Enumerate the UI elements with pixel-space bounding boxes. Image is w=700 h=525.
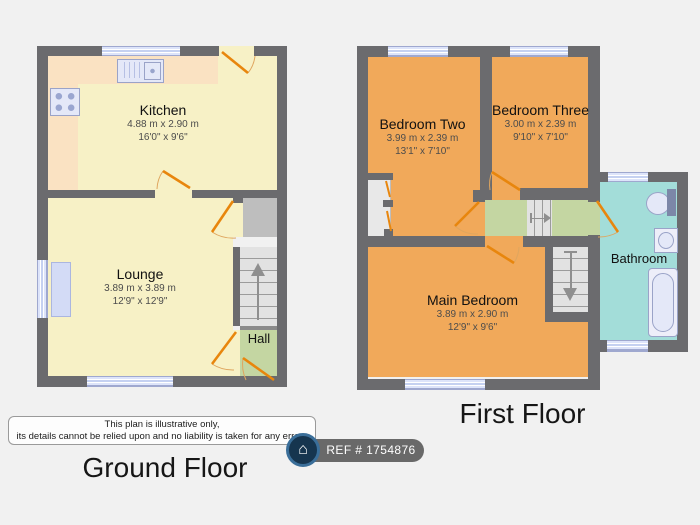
room-dimensions-metric: 3.99 m x 2.39 m — [350, 133, 495, 146]
bedroom-three-door-opening — [488, 188, 520, 200]
room-dimensions-imperial: 12'9" x 9'6" — [395, 322, 550, 335]
room-name: Kitchen — [88, 102, 238, 119]
bedroom-two-door-opening — [473, 202, 485, 233]
wall — [240, 326, 277, 330]
kitchen-label: Kitchen 4.88 m x 2.90 m 16'0" x 9'6" — [88, 102, 238, 144]
room-dimensions-imperial: 9'10" x 7'10" — [478, 132, 603, 145]
wall — [180, 46, 219, 56]
room-name: Bedroom Three — [478, 102, 603, 119]
wall — [648, 340, 688, 352]
toilet-cistern — [667, 189, 676, 216]
window — [37, 260, 48, 318]
room-dimensions-metric: 3.89 m x 3.89 m — [65, 283, 215, 296]
landing — [485, 200, 527, 236]
room-dimensions-metric: 3.89 m x 2.90 m — [395, 309, 550, 322]
house-icon-glyph: ⌂ — [298, 441, 308, 458]
bedroom-three-label: Bedroom Three 3.00 m x 2.39 m 9'10" x 7'… — [478, 102, 603, 144]
ground-floor-title: Ground Floor — [40, 452, 290, 484]
floorplan-canvas: Kitchen 4.88 m x 2.90 m 16'0" x 9'6" Lou… — [0, 0, 700, 525]
sink-drainer — [120, 62, 142, 78]
main-bedroom-understairs — [545, 322, 588, 377]
wall — [523, 236, 600, 247]
window — [608, 172, 648, 182]
wall — [473, 190, 485, 202]
window — [388, 46, 448, 57]
basin-bowl — [658, 232, 674, 249]
wall — [383, 200, 393, 207]
wall — [384, 229, 393, 236]
wall — [192, 190, 277, 198]
stairs-top-flight — [527, 200, 552, 236]
window — [510, 46, 568, 57]
hall-label: Hall — [240, 331, 278, 346]
bathroom-label: Bathroom — [600, 251, 678, 266]
disclaimer-box: This plan is illustrative only, its deta… — [8, 416, 316, 445]
room-name: Lounge — [65, 266, 215, 283]
house-icon: ⌂ — [286, 433, 320, 467]
disclaimer-line1: This plan is illustrative only, — [9, 419, 315, 431]
understairs-cupboard — [243, 198, 277, 237]
wall — [233, 198, 243, 203]
window — [102, 46, 180, 56]
back-door-opening — [219, 46, 254, 56]
first-floor-title: First Floor — [400, 398, 645, 430]
cupboard-opening — [233, 203, 243, 237]
kitchen-sink — [117, 59, 164, 83]
wall — [448, 46, 510, 57]
wall — [48, 190, 155, 198]
wall — [485, 379, 600, 390]
bathroom-door-opening — [588, 202, 600, 235]
room-dimensions-imperial: 12'9" x 12'9" — [65, 296, 215, 309]
wall — [277, 46, 287, 387]
kitchen-lounge-opening — [155, 190, 192, 198]
wall — [173, 376, 287, 387]
wall — [357, 173, 393, 180]
room-dimensions-imperial: 13'1" x 7'10" — [350, 146, 495, 159]
disclaimer-line2: its details cannot be relied upon and no… — [9, 431, 315, 443]
stove — [50, 88, 80, 116]
stairs-right-arrow — [544, 213, 551, 223]
washbasin — [654, 228, 678, 253]
stairs-up-arrow — [251, 263, 265, 276]
room-dimensions-metric: 3.00 m x 2.39 m — [478, 119, 603, 132]
lounge-label: Lounge 3.89 m x 3.89 m 12'9" x 12'9" — [65, 266, 215, 308]
wall — [357, 379, 405, 390]
wall — [677, 172, 688, 352]
room-name: Bedroom Two — [350, 116, 495, 133]
landing — [552, 200, 588, 236]
room-name: Main Bedroom — [395, 292, 550, 309]
lounge-hall-opening — [233, 330, 240, 377]
room-dimensions-metric: 4.88 m x 2.90 m — [88, 119, 238, 132]
staircase-up — [240, 247, 277, 326]
staircase-down — [553, 247, 588, 312]
wall — [600, 172, 608, 182]
wall — [357, 236, 485, 247]
wall — [357, 46, 368, 390]
bathtub — [648, 268, 678, 337]
sink-basin — [144, 62, 161, 80]
room-dimensions-imperial: 16'0" x 9'6" — [88, 132, 238, 145]
bathtub-inner — [652, 273, 674, 332]
ref-number: REF # 1754876 — [326, 443, 415, 457]
built-in-closet — [368, 180, 391, 236]
bedroom-two-label: Bedroom Two 3.99 m x 2.39 m 13'1" x 7'10… — [350, 116, 495, 158]
wall — [600, 340, 607, 352]
room-name: Bathroom — [600, 251, 678, 266]
main-bedroom-label: Main Bedroom 3.89 m x 2.90 m 12'9" x 9'6… — [395, 292, 550, 334]
window — [607, 340, 648, 352]
wall — [545, 312, 600, 322]
wall — [233, 247, 240, 326]
wall — [37, 376, 87, 387]
window — [87, 376, 173, 387]
main-bedroom-door-opening — [485, 236, 523, 247]
room-name: Hall — [240, 331, 278, 346]
wall — [520, 188, 600, 200]
window — [405, 379, 485, 390]
stairs-down-arrow — [563, 288, 577, 301]
wall — [37, 46, 48, 387]
